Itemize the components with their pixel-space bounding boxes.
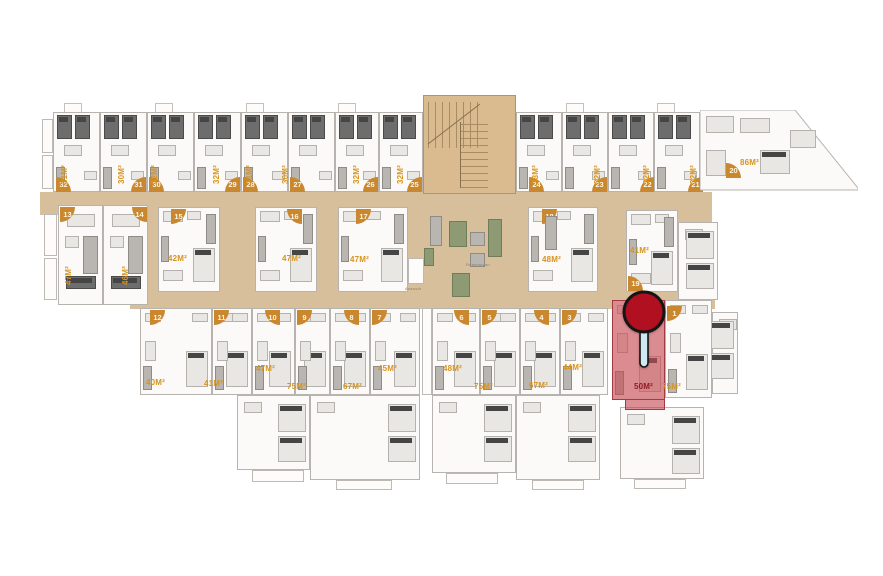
unit-area-label: 32M²: [150, 165, 159, 184]
bed-pillow: [346, 353, 362, 358]
bed-pillow: [586, 117, 595, 122]
unit-area-label: 41M²: [630, 246, 649, 255]
bath-fixture: [546, 171, 559, 180]
bed-pillow: [218, 117, 227, 122]
fixture: [192, 313, 208, 322]
unit-area-label: 42M²: [168, 254, 187, 263]
bed-pillow: [390, 438, 412, 443]
wardrobe: [83, 236, 98, 274]
bed-pillow: [688, 233, 710, 238]
bed-pillow: [390, 406, 412, 411]
lobby-table: [470, 232, 485, 246]
bed-pillow: [385, 117, 394, 122]
sofa: [343, 270, 363, 281]
unit-6[interactable]: [432, 308, 480, 395]
wardrobe: [303, 214, 313, 244]
unit-area-label: 86M²: [740, 158, 759, 167]
table: [390, 145, 408, 156]
duplex-lower-room[interactable]: [620, 407, 704, 479]
bed-pillow: [688, 356, 704, 361]
bed-pillow: [280, 438, 302, 443]
bed-pillow: [312, 117, 321, 122]
wardrobe: [611, 167, 620, 189]
bath-fixture: [178, 171, 191, 180]
balcony: [44, 214, 57, 256]
bed-pillow: [396, 353, 412, 358]
table: [573, 145, 591, 156]
sofa: [217, 341, 228, 361]
bed-pillow: [294, 117, 303, 122]
unit-area-label: 41M²: [204, 379, 223, 388]
bed-pillow: [383, 250, 399, 255]
bed-pillow: [77, 117, 86, 122]
unit-area-label: 47M²: [256, 364, 275, 373]
table: [252, 145, 270, 156]
fixture: [310, 313, 326, 322]
bed-pillow: [678, 117, 687, 122]
unit-area-label: 75M²: [474, 382, 493, 391]
unit-area-label: 32M²: [689, 165, 698, 184]
bath-fixture: [319, 171, 332, 180]
bed: [790, 130, 816, 148]
bed-pillow: [280, 406, 302, 411]
table: [665, 145, 683, 156]
bed-pillow: [486, 406, 508, 411]
unit-16[interactable]: [255, 207, 317, 292]
table: [346, 145, 364, 156]
sofa: [375, 341, 386, 361]
sofa: [525, 341, 536, 361]
unit-area-label: 67M²: [529, 381, 548, 390]
unit-area-label: 48M²: [542, 255, 561, 264]
bed-pillow: [486, 438, 508, 443]
sofa: [257, 341, 268, 361]
floor-plan: 3231M²3130M²3032M²2932M²2831M²2730M²2632…: [0, 0, 883, 576]
fixture: [110, 236, 124, 248]
lobby-sofa: [488, 219, 502, 257]
bed-pillow: [674, 418, 696, 423]
duplex-lower-room[interactable]: [678, 222, 718, 300]
wardrobe: [664, 217, 674, 247]
balcony: [42, 119, 53, 153]
bed-pillow: [573, 250, 589, 255]
unit-area-label: 32M²: [212, 165, 221, 184]
bed-pillow: [762, 152, 786, 157]
unit-area-label: 67M²: [343, 382, 362, 391]
bed-pillow: [536, 353, 552, 358]
table: [64, 145, 82, 156]
table: [523, 402, 541, 413]
bed-pillow: [59, 117, 68, 122]
fixture: [65, 236, 79, 248]
unit-area-label: 47M²: [282, 254, 301, 263]
bed-pillow: [688, 265, 710, 270]
kitchenette: [531, 236, 539, 262]
unit-area-label: 45M²: [378, 364, 397, 373]
unit-area-label: 30M²: [281, 165, 290, 184]
lobby-sofa: [452, 273, 470, 297]
table: [205, 145, 223, 156]
elevator: [408, 258, 424, 284]
bed-pillow: [568, 117, 577, 122]
balcony: [532, 480, 584, 490]
bed-pillow: [456, 353, 472, 358]
wardrobe: [382, 167, 391, 189]
bath-fixture: [84, 171, 97, 180]
closet: [333, 366, 342, 390]
balcony: [252, 470, 304, 482]
reception-label: Resepsiyon: [466, 262, 490, 267]
bed-pillow: [195, 250, 211, 255]
bed-pillow: [653, 253, 669, 258]
wardrobe: [565, 167, 574, 189]
bed-pillow: [341, 117, 350, 122]
bed-pillow: [403, 117, 412, 122]
bed-pillow: [674, 450, 696, 455]
table: [317, 402, 335, 413]
unit-20[interactable]: [700, 110, 858, 192]
kitchenette: [341, 236, 349, 262]
kitchenette: [258, 236, 266, 262]
table: [527, 145, 545, 156]
wardrobe: [128, 236, 143, 274]
bed-pillow: [171, 117, 180, 122]
bed-pillow: [124, 117, 133, 122]
bed-pillow: [614, 117, 623, 122]
unit-18[interactable]: [528, 207, 598, 292]
balcony: [42, 155, 53, 189]
sofa: [740, 118, 770, 133]
sofa: [485, 341, 496, 361]
fixture: [692, 305, 708, 314]
balcony: [422, 308, 432, 395]
bed-pillow: [228, 353, 244, 358]
bed-pillow: [496, 353, 512, 358]
wardrobe: [103, 167, 112, 189]
wardrobe: [197, 167, 206, 189]
bed-pillow: [188, 353, 204, 358]
unit-area-label: 75M²: [662, 382, 681, 391]
duplex-lower-room[interactable]: [516, 395, 600, 480]
fixture: [437, 313, 453, 322]
bed-pillow: [359, 117, 368, 122]
lobby-sofa: [449, 221, 467, 247]
fixture: [588, 313, 604, 322]
bed-pillow: [584, 353, 600, 358]
fixture: [187, 211, 201, 220]
wardrobe: [338, 167, 347, 189]
fixture: [400, 313, 416, 322]
unit-15[interactable]: [158, 207, 220, 292]
table: [439, 402, 457, 413]
table: [158, 145, 176, 156]
table: [111, 145, 129, 156]
unit-area-label: 50M²: [634, 382, 653, 391]
table: [244, 402, 262, 413]
bed-pillow: [632, 117, 641, 122]
wardrobe: [584, 214, 594, 244]
sofa: [145, 341, 156, 361]
unit-area-label: 31M²: [60, 165, 69, 184]
unit-area-label: 32M²: [396, 165, 405, 184]
sofa: [335, 341, 346, 361]
duplex-lower-room[interactable]: [310, 395, 420, 480]
balcony: [446, 473, 498, 484]
balcony: [336, 480, 392, 490]
wardrobe: [394, 214, 404, 244]
unit-area-label: 32M²: [642, 165, 651, 184]
unit-area-label: 46M²: [121, 266, 130, 285]
table: [619, 145, 637, 156]
duplex-lower-room[interactable]: [237, 395, 310, 470]
unit-area-label: 30M²: [117, 165, 126, 184]
balcony: [634, 479, 686, 489]
fixture: [706, 150, 726, 176]
bed-pillow: [247, 117, 256, 122]
unit-area-label: 48M²: [443, 364, 462, 373]
unit-area-label: 40M²: [146, 378, 165, 387]
bed-pillow: [522, 117, 531, 122]
unit-area-label: 32M²: [352, 165, 361, 184]
bed-pillow: [570, 438, 592, 443]
elevator-label: Asansör: [405, 286, 422, 291]
fixture: [232, 313, 248, 322]
sofa: [706, 116, 734, 133]
unit-area-label: 32M²: [593, 165, 602, 184]
fixture: [260, 211, 280, 222]
fixture: [631, 214, 651, 225]
unit-17[interactable]: [338, 207, 408, 292]
wardrobe: [519, 167, 528, 189]
sofa: [163, 270, 183, 281]
duplex-lower-room[interactable]: [432, 395, 516, 473]
lobby-table: [545, 216, 557, 250]
bed-pillow: [200, 117, 209, 122]
bed-pillow: [106, 117, 115, 122]
staircase: [423, 95, 516, 194]
bed-pillow: [660, 117, 669, 122]
wardrobe: [657, 167, 666, 189]
sofa: [260, 270, 280, 281]
bed-pillow: [271, 353, 287, 358]
balcony: [44, 258, 57, 300]
table: [627, 414, 645, 425]
lobby-sofa: [424, 248, 434, 266]
unit-area-label: 44M²: [563, 363, 582, 372]
pin-icon[interactable]: [614, 289, 674, 379]
lobby-table: [430, 216, 442, 246]
unit-area-label: 47M²: [350, 255, 369, 264]
unit-area-label: 47M²: [64, 266, 73, 285]
table: [299, 145, 317, 156]
unit-area-label: 33M²: [531, 165, 540, 184]
sofa: [565, 341, 576, 361]
sofa: [437, 341, 448, 361]
bed-pillow: [570, 406, 592, 411]
stair-diagonal-line: [424, 96, 517, 195]
bed-pillow: [540, 117, 549, 122]
unit-area-label: 31M²: [245, 165, 254, 184]
bed-pillow: [153, 117, 162, 122]
sofa: [300, 341, 311, 361]
fixture: [500, 313, 516, 322]
highlighted-unit-overlay-lower: [625, 399, 665, 410]
unit-area-label: 75M²: [287, 382, 306, 391]
bed-pillow: [265, 117, 274, 122]
sofa: [533, 270, 553, 281]
fixture: [557, 211, 571, 220]
wardrobe: [206, 214, 216, 244]
duplex-lower-room[interactable]: [712, 312, 738, 394]
